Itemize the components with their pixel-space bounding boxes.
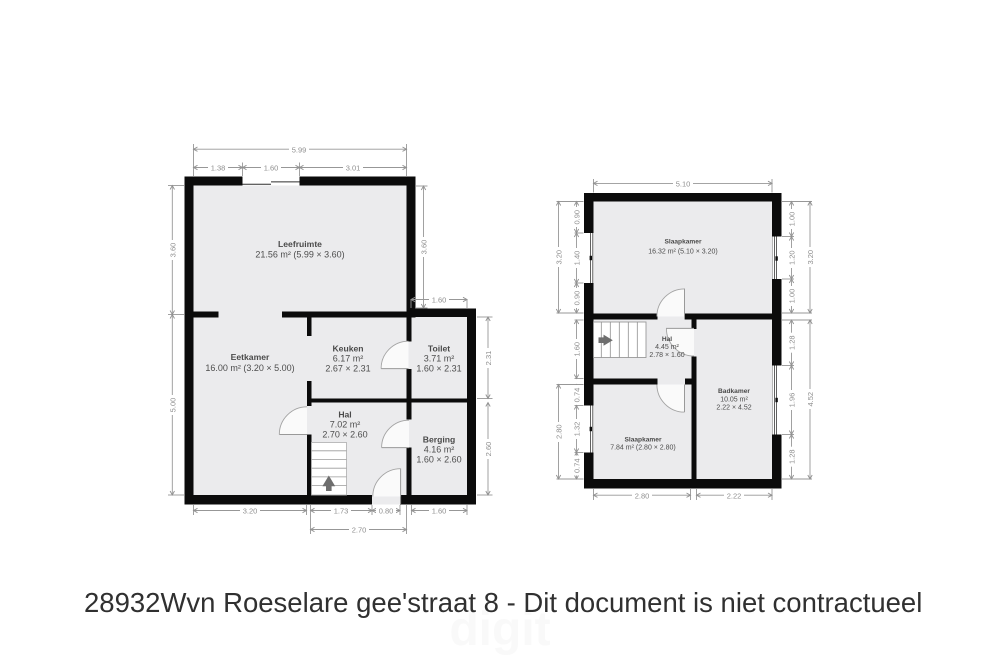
svg-text:4.16 m²: 4.16 m² <box>424 444 455 454</box>
svg-text:3.20: 3.20 <box>555 250 564 265</box>
svg-text:2.31: 2.31 <box>484 351 493 366</box>
svg-text:5.10: 5.10 <box>676 180 691 189</box>
svg-text:Leefruimte: Leefruimte <box>278 239 322 249</box>
svg-text:Eetkamer: Eetkamer <box>231 352 270 362</box>
svg-text:Hal: Hal <box>662 336 672 343</box>
svg-text:Slaapkamer: Slaapkamer <box>624 436 661 443</box>
svg-text:2.70: 2.70 <box>352 526 367 535</box>
svg-text:1.28: 1.28 <box>788 449 797 464</box>
svg-text:3.01: 3.01 <box>346 164 361 173</box>
svg-text:3.71 m²: 3.71 m² <box>424 353 455 363</box>
svg-text:21.56 m² (5.99 × 3.60): 21.56 m² (5.99 × 3.60) <box>255 250 344 260</box>
svg-text:0.74: 0.74 <box>573 388 582 403</box>
svg-text:3.60: 3.60 <box>420 240 429 255</box>
svg-text:0.74: 0.74 <box>573 458 582 473</box>
svg-text:2.22 × 4.52: 2.22 × 4.52 <box>716 404 751 411</box>
svg-text:2.67 × 2.31: 2.67 × 2.31 <box>325 363 370 373</box>
svg-text:1.60 × 2.60: 1.60 × 2.60 <box>416 454 461 464</box>
svg-text:5.99: 5.99 <box>292 145 307 154</box>
svg-text:1.73: 1.73 <box>334 507 349 516</box>
svg-text:3.20: 3.20 <box>806 250 815 265</box>
svg-text:1.60: 1.60 <box>432 507 447 516</box>
svg-text:2.22: 2.22 <box>727 491 742 500</box>
svg-text:6.17 m²: 6.17 m² <box>333 353 364 363</box>
svg-text:1.38: 1.38 <box>211 164 226 173</box>
svg-text:1.60: 1.60 <box>573 342 582 357</box>
svg-text:2.60: 2.60 <box>484 442 493 457</box>
svg-text:2.80: 2.80 <box>555 424 564 439</box>
svg-text:Hal: Hal <box>338 409 351 419</box>
svg-text:0.90: 0.90 <box>573 210 582 225</box>
svg-text:2.70 × 2.60: 2.70 × 2.60 <box>322 429 367 439</box>
svg-text:1.28: 1.28 <box>788 335 797 350</box>
svg-text:Toilet: Toilet <box>428 343 450 353</box>
svg-text:1.96: 1.96 <box>788 393 797 408</box>
svg-text:1.60 × 2.31: 1.60 × 2.31 <box>416 363 461 373</box>
svg-text:0.80: 0.80 <box>379 507 394 516</box>
svg-text:16.32 m² (5.10 × 3.20): 16.32 m² (5.10 × 3.20) <box>648 249 717 256</box>
svg-text:3.60: 3.60 <box>168 243 177 258</box>
svg-text:3.20: 3.20 <box>243 507 258 516</box>
svg-text:1.32: 1.32 <box>573 422 582 437</box>
svg-text:28932Wvn Roeselare gee'straat: 28932Wvn Roeselare gee'straat 8 - Dit do… <box>84 587 922 618</box>
svg-text:7.84 m² (2.80 × 2.80): 7.84 m² (2.80 × 2.80) <box>610 444 676 451</box>
svg-text:1.60: 1.60 <box>432 296 447 305</box>
svg-text:1.00: 1.00 <box>788 212 797 227</box>
svg-text:5.00: 5.00 <box>168 398 177 413</box>
svg-text:4.45 m²: 4.45 m² <box>655 344 679 351</box>
svg-text:1.60: 1.60 <box>264 164 279 173</box>
svg-text:1.40: 1.40 <box>573 251 582 266</box>
svg-text:1.20: 1.20 <box>788 250 797 265</box>
svg-text:4.52: 4.52 <box>806 392 815 407</box>
svg-text:2.80: 2.80 <box>635 491 650 500</box>
svg-text:0.90: 0.90 <box>573 291 582 306</box>
svg-text:16.00 m² (3.20 × 5.00): 16.00 m² (3.20 × 5.00) <box>205 363 294 373</box>
svg-text:Berging: Berging <box>423 434 455 444</box>
svg-text:2.78 × 1.60: 2.78 × 1.60 <box>649 352 684 359</box>
svg-text:10.05 m²: 10.05 m² <box>720 397 748 404</box>
svg-text:Badkamer: Badkamer <box>718 388 750 395</box>
svg-text:Keuken: Keuken <box>332 343 363 353</box>
svg-text:7.02 m²: 7.02 m² <box>330 419 361 429</box>
svg-text:Slaapkamer: Slaapkamer <box>664 239 701 246</box>
svg-text:1.00: 1.00 <box>788 289 797 304</box>
